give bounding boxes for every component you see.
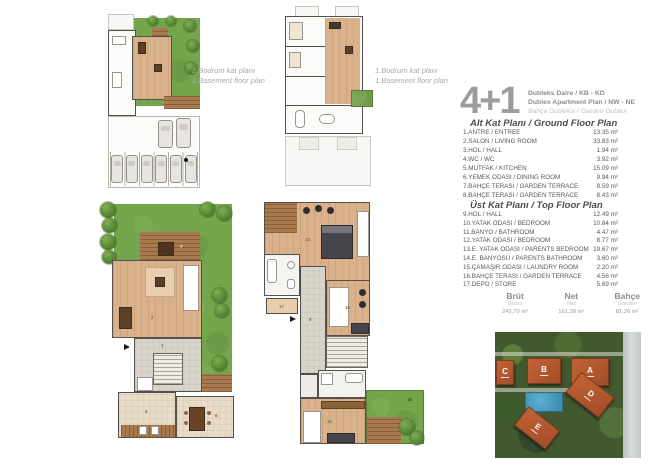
total-column: Net Net 161,38 m² [558,291,584,316]
shower [321,373,333,385]
driveway-area [108,14,134,30]
total-label-en: Garden [614,301,640,308]
plan-ground-floor: 8 7 2 1 5 [100,200,250,442]
living-room: 2 [112,260,202,338]
room-area: 33.83 m² [593,137,618,146]
plan-top-floor: 13 17 9 10 12 [262,200,427,445]
room-area: 1.94 m² [597,146,618,155]
terrace-deck [367,417,401,444]
room-area: 19.67 m² [593,246,618,255]
room-row: 12.YATAK ODASI / BEDROOM 8.77 m² [463,237,618,246]
tree-icon [100,202,116,218]
appliance [151,426,159,435]
building-c: C [496,360,514,385]
chair [184,411,188,415]
total-label-en: Gross [502,301,528,308]
plan-1st-basement [283,6,378,188]
room-area: 10.84 m² [593,220,618,229]
bathtub [345,373,363,383]
bathtub [267,259,277,283]
room-name: 5.MUTFAK / KITCHEN [463,164,527,173]
floor-plan-sheet: 2.Bodrum kat planı 2.Basement floor plan… [0,0,660,466]
furniture [329,22,341,29]
room-number: 9 [309,317,312,322]
room-name: 17.DEPO / STORE [463,281,516,290]
bathroom-lower [318,370,366,398]
dining-table [189,407,205,431]
laundry-room [300,374,318,398]
total-value: 242,70 m² [502,308,528,316]
room-number: 10 [345,305,350,310]
garden-terrace: 16 [366,390,424,444]
bathroom [264,254,300,296]
building-b: B [527,358,561,384]
room-number: 16 [407,397,412,402]
room-number: 13 [305,237,310,242]
top-floor-section-title: Üst Kat Planı / Top Floor Plan [470,200,603,211]
room-name: 12.YATAK ODASI / BEDROOM [463,237,550,246]
ground-floor-room-list: 1.ANTRE / ENTREE 13.35 m² 2.SALON / LIVI… [463,128,618,200]
room-name: 2.SALON / LIVING ROOM [463,137,537,146]
room-name: 14.E. BANYOSU / PARENTS BATHROOM [463,255,582,264]
chair [207,411,211,415]
total-column: Brüt Gross 242,70 m² [502,291,528,316]
furniture [345,46,353,54]
bedroom-lower: 12 [300,398,366,444]
sink [287,261,295,269]
room-row: 6.YEMEK ODASI / DINING ROOM 9.94 m² [463,173,618,182]
room-number: 1 [161,343,164,348]
building-e: E [514,406,560,450]
room-area: 8.77 m² [597,237,618,246]
tree-icon [100,234,116,250]
room-number: 6 [215,413,218,418]
car-icon [158,120,173,148]
caption-2nd-basement: 2.Bodrum kat planı 2.Basement floor plan [192,66,265,86]
room-area: 13.35 m² [593,128,618,137]
legend-title-tr: Dubleks Daire / KB - KD [528,89,635,98]
room-area: 4.47 m² [597,229,618,238]
room-area: 8.43 m² [597,191,618,200]
car-icon [111,155,123,183]
room-area: 12.49 m² [593,211,618,220]
building-sub-line [540,375,548,376]
desk [351,323,369,334]
legend-header: Dubleks Daire / KB - KD Dublex Apartment… [528,89,635,116]
lower-roof-outline [285,136,371,186]
outdoor-table [158,242,174,256]
total-column: Bahçe Garden 81,26 m² [614,291,640,316]
room-name: 4.WC / WC [463,155,494,164]
room-row: 7.BAHÇE TERASI / GARDEN TERRACE 8.59 m² [463,182,618,191]
room-area: 4.56 m² [597,273,618,282]
total-value: 161,38 m² [558,308,584,316]
room-name: 1.ANTRE / ENTREE [463,128,520,137]
tree-icon [212,288,227,303]
staircase [153,353,183,385]
balcony-deck [265,203,297,233]
tree-icon [148,16,158,26]
caption-line-en: 2.Basement floor plan [192,76,265,86]
room-name: 9.HOL / HALL [463,211,502,220]
bedroom: 10 [326,280,370,336]
bathtub [319,114,335,124]
piano [119,307,132,329]
bathtub [295,110,305,128]
tree-icon [212,356,227,371]
furniture [154,64,162,72]
area-totals: Brüt Gross 242,70 m² Net Net 161,38 m² B… [502,291,640,316]
path [495,352,623,356]
dining-room: 6 [176,396,234,438]
kitchen-counter [121,425,175,437]
building-letter: B [541,366,547,374]
bathtub [112,72,122,88]
tree-icon [200,202,215,217]
plant-icon [359,289,366,296]
room-area: 15.09 m² [593,164,618,173]
plant-icon [359,301,366,308]
sofa [183,265,199,311]
furniture [112,36,126,45]
roof-notch [299,137,319,150]
room-row: 1.ANTRE / ENTREE 13.35 m² [463,128,618,137]
room-name: 13.E. YATAK ODASI / PARENTS BEDROOM [463,246,589,255]
room-name: 16.BAHÇE TERASI / GARDEN TERRACE [463,273,582,282]
tree-icon [217,206,232,221]
room-name: 15.ÇAMAŞIR ODASI / LAUNDRY ROOM [463,264,578,273]
desk [327,433,355,443]
tree-icon [215,304,229,318]
coffee-table [155,277,165,287]
entrance-arrow-icon [124,344,130,350]
wardrobe [357,211,369,257]
room-name: 3.HOL / HALL [463,146,502,155]
store-room: 17 [266,298,298,314]
column-dot [184,158,188,162]
room-name: 8.BAHÇE TERASI / GARDEN TERRACE [463,191,578,200]
chair [184,421,188,425]
room-area: 3.92 m² [597,155,618,164]
closet [137,377,153,391]
room-row: 9.HOL / HALL 12.49 m² [463,211,618,220]
terrace-deck [164,96,200,109]
unit-type-label: 4+1 [460,86,518,116]
room-row: 11.BANYO / BATHROOM 4.47 m² [463,229,618,238]
bed [303,411,321,443]
room-row: 4.WC / WC 3.92 m² [463,155,618,164]
entry-hall: 1 [134,338,202,392]
building-letter: A [587,367,593,375]
caption-line-tr: 2.Bodrum kat planı [192,66,265,76]
plant-icon [327,207,334,214]
total-label-tr: Net [558,291,584,301]
wall-line [286,46,325,47]
plan-2nd-basement [108,12,200,188]
caption-1st-basement: 1.Bodrum kat planı 1.Basement floor plan [375,66,448,86]
total-label-en: Net [558,301,584,308]
room-name: 11.BANYO / BATHROOM [463,229,535,238]
room-name: 7.BAHÇE TERASI / GARDEN TERRACE [463,182,578,191]
room-area: 2.20 m² [597,264,618,273]
room-area: 5.69 m² [597,281,618,290]
staircase [326,336,368,368]
furniture [138,42,146,54]
appliance [139,426,147,435]
room-row: 13.E. YATAK ODASI / PARENTS BEDROOM 19.6… [463,246,618,255]
car-icon [126,155,138,183]
room-number: 12 [327,419,332,424]
roof-notch [337,137,357,150]
room-area: 8.59 m² [597,182,618,191]
tree-icon [166,16,176,26]
room-row: 2.SALON / LIVING ROOM 33.83 m² [463,137,618,146]
car-icon [155,155,167,183]
tree-icon [184,20,196,32]
room-number: 17 [279,304,284,309]
wall-line [286,76,325,77]
wardrobe [321,401,365,409]
road [623,332,641,458]
room-number: 5 [145,409,148,414]
caption-line-tr: 1.Bodrum kat planı [375,66,448,76]
room-row: 10.YATAK ODASI / BEDROOM 10.84 m² [463,220,618,229]
building-sub-line [501,377,509,378]
legend-subtitle: Bahçe Dubleksi / Garden Dublex [528,107,635,116]
room-row: 15.ÇAMAŞIR ODASI / LAUNDRY ROOM 2.20 m² [463,264,618,273]
car-icon [170,155,182,183]
chair [207,421,211,425]
room-name: 10.YATAK ODASI / BEDROOM [463,220,550,229]
hall: 9 [300,266,326,374]
room-row: 8.BAHÇE TERASI / GARDEN TERRACE 8.43 m² [463,191,618,200]
garden-patch [351,90,373,107]
caption-line-en: 1.Basement floor plan [375,76,448,86]
total-label-tr: Brüt [502,291,528,301]
tree-icon [102,218,117,233]
room-area: 9.94 m² [597,173,618,182]
room-row: 3.HOL / HALL 1.94 m² [463,146,618,155]
room-area: 3.60 m² [597,255,618,264]
car-icon [176,118,191,148]
tree-icon [410,431,424,445]
room-number: 2 [151,315,154,320]
bed-pillows [322,226,352,233]
site-plan: C B A D E [495,332,641,458]
toilet [287,279,295,289]
entrance-arrow-icon [290,316,296,322]
building-letter: C [502,368,508,376]
room-row: 16.BAHÇE TERASI / GARDEN TERRACE 4.56 m² [463,273,618,282]
plant-icon [303,207,310,214]
legend-title-en: Dublex Apartment Plan / NW - NE [528,98,635,107]
tree-icon [187,40,199,52]
plant-icon [315,205,322,212]
kitchen: 5 [118,392,176,438]
car-icon [141,155,153,183]
room-name: 6.YEMEK ODASI / DINING ROOM [463,173,560,182]
total-value: 81,26 m² [614,308,640,316]
room-row: 5.MUTFAK / KITCHEN 15.09 m² [463,164,618,173]
room-row: 17.DEPO / STORE 5.69 m² [463,281,618,290]
room-number: 7 [180,244,183,249]
bed [289,52,301,68]
total-label-tr: Bahçe [614,291,640,301]
room-row: 14.E. BANYOSU / PARENTS BATHROOM 3.60 m² [463,255,618,264]
top-floor-room-list: 9.HOL / HALL 12.49 m² 10.YATAK ODASI / B… [463,211,618,290]
bed [289,22,303,40]
